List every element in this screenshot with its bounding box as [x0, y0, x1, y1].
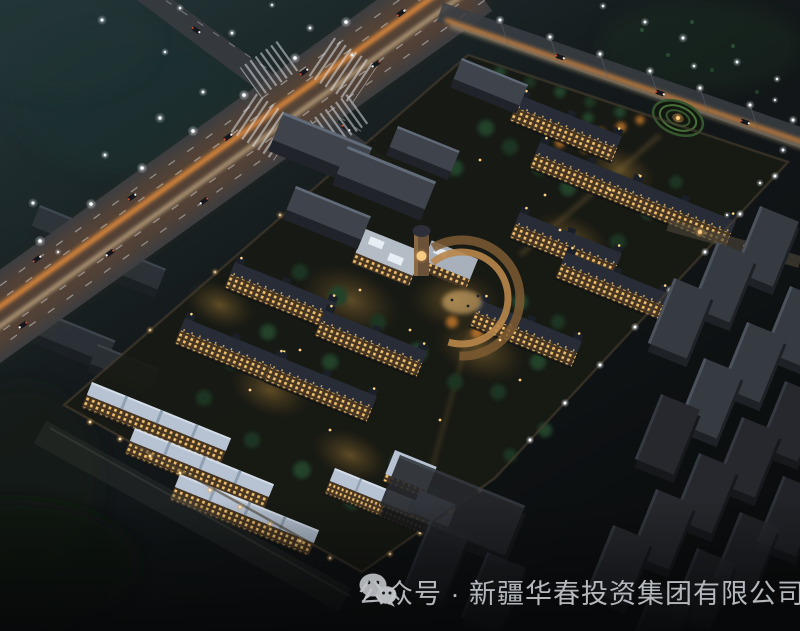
- scene-canvas: [0, 0, 800, 631]
- aerial-night-rendering: 公众号 · 新疆华春投资集团有限公司: [0, 0, 800, 631]
- bottom-vignette: [0, 500, 800, 631]
- plaza-floor: [442, 290, 482, 314]
- clock-tower: [413, 225, 431, 276]
- watermark-caption: 公众号 · 新疆华春投资集团有限公司: [358, 572, 800, 611]
- caption-text: 公众号 · 新疆华春投资集团有限公司: [358, 572, 800, 611]
